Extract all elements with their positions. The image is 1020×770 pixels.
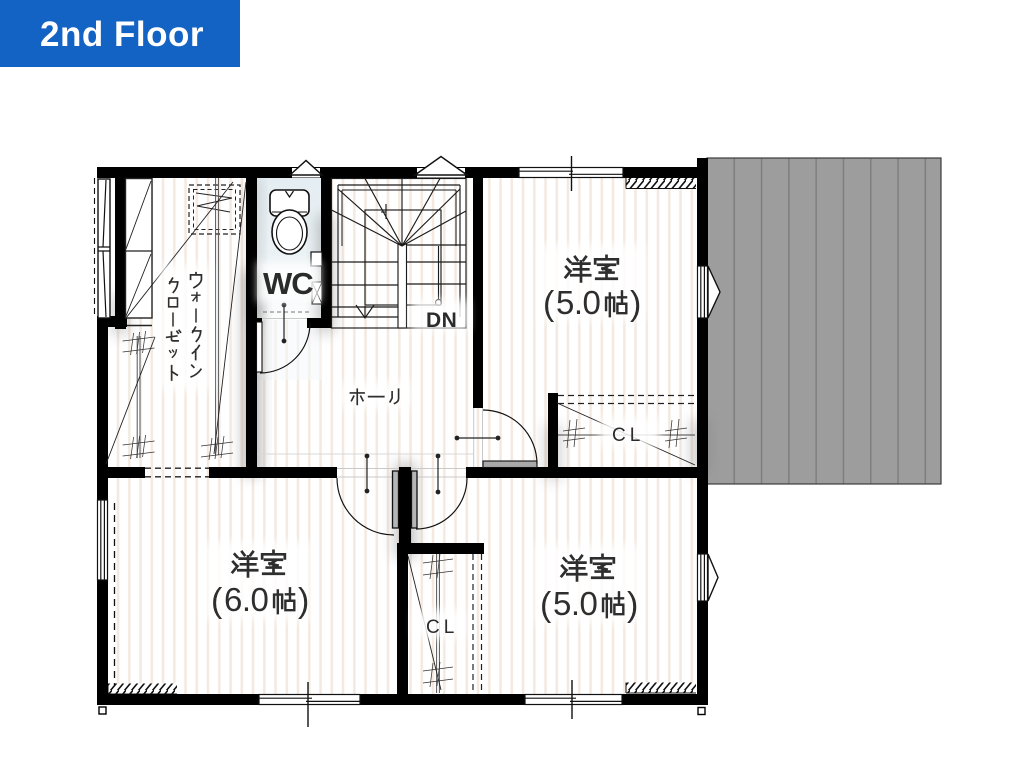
svg-text:CL: CL [426,617,458,638]
svg-text:CL: CL [612,425,644,446]
svg-text:(: ( [211,582,223,620]
svg-text:): ) [298,582,309,620]
svg-text:(: ( [543,285,555,323]
svg-text:5.0: 5.0 [556,284,601,321]
svg-text:6.0: 6.0 [224,581,269,618]
svg-text:): ) [630,285,641,323]
svg-text:DN: DN [426,309,457,332]
svg-text:(: ( [540,586,552,624]
svg-text:5.0: 5.0 [553,585,598,622]
svg-text:): ) [627,586,638,624]
svg-text:2nd Floor: 2nd Floor [40,15,204,54]
svg-text:WC: WC [263,266,313,301]
